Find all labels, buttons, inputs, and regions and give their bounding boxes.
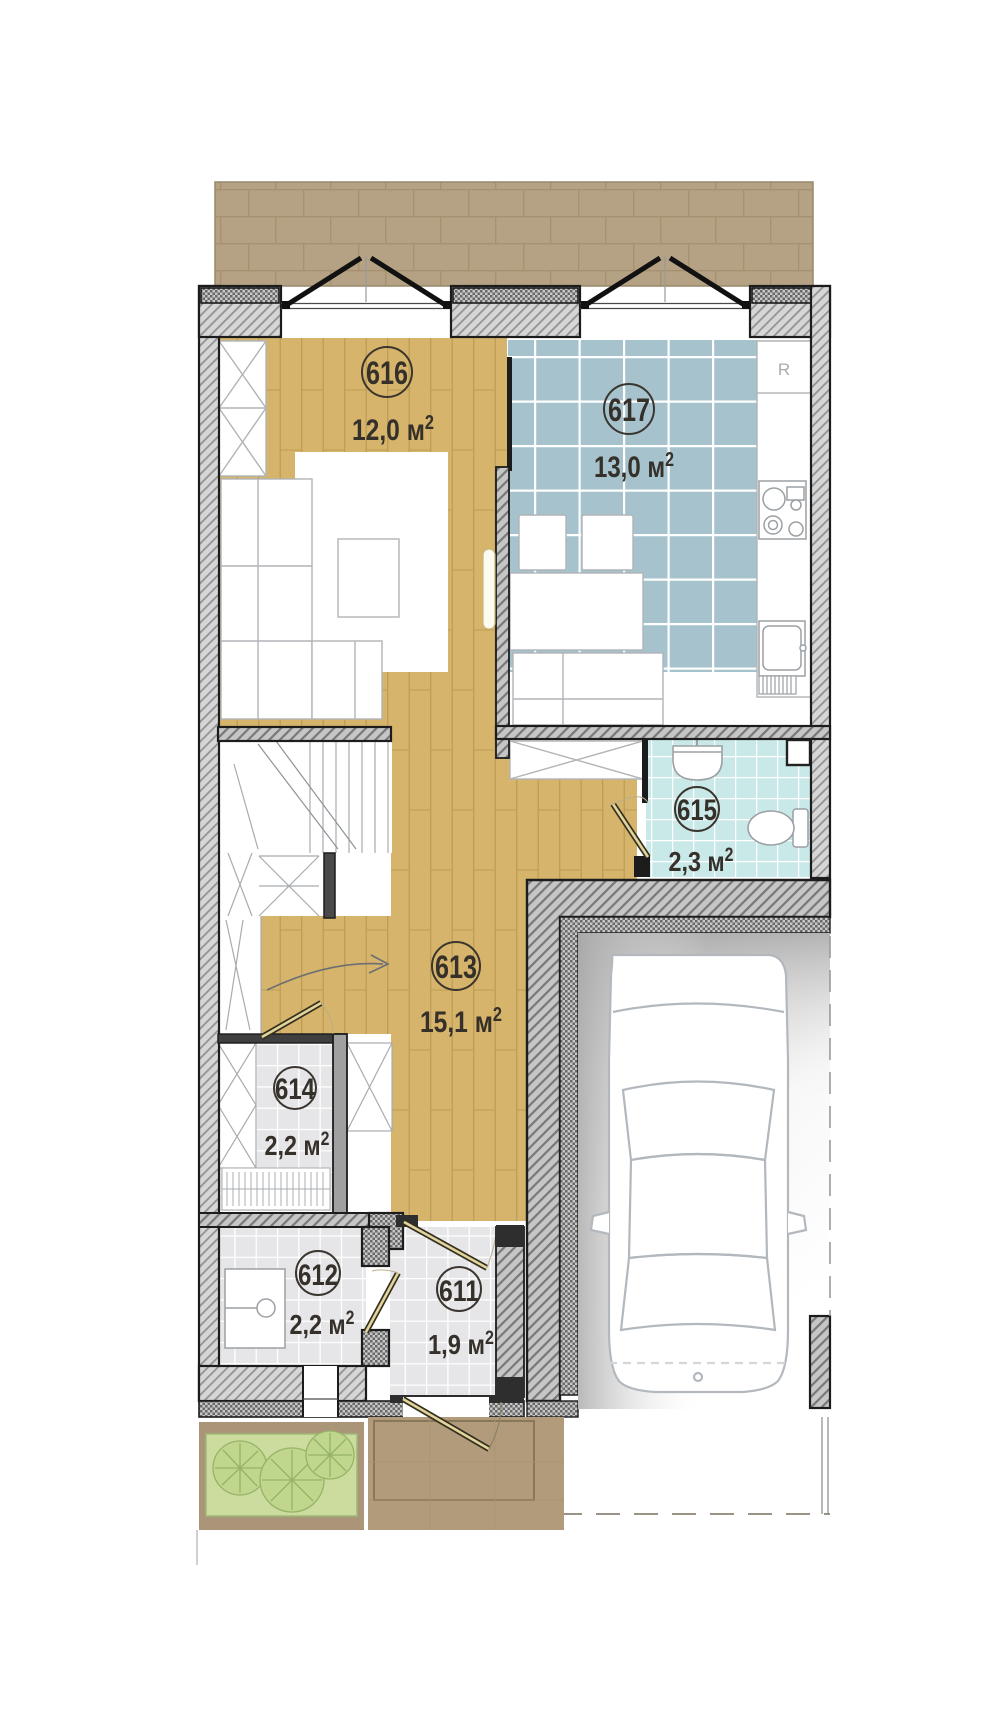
svg-text:612: 612	[298, 1259, 338, 1292]
svg-text:R: R	[778, 360, 790, 379]
svg-text:12,0 м2: 12,0 м2	[352, 412, 434, 447]
svg-text:2,2 м2: 2,2 м2	[290, 1308, 355, 1340]
svg-text:2,3 м2: 2,3 м2	[669, 845, 734, 877]
svg-text:13,0 м2: 13,0 м2	[594, 449, 674, 484]
svg-text:617: 617	[608, 392, 650, 428]
svg-text:615: 615	[677, 794, 717, 827]
svg-text:2,2 м2: 2,2 м2	[265, 1129, 330, 1161]
svg-text:613: 613	[435, 949, 477, 985]
svg-text:611: 611	[439, 1275, 479, 1308]
svg-text:614: 614	[275, 1073, 315, 1106]
svg-text:616: 616	[366, 355, 408, 391]
svg-text:1,9 м2: 1,9 м2	[428, 1328, 494, 1360]
svg-text:15,1 м2: 15,1 м2	[420, 1004, 502, 1039]
